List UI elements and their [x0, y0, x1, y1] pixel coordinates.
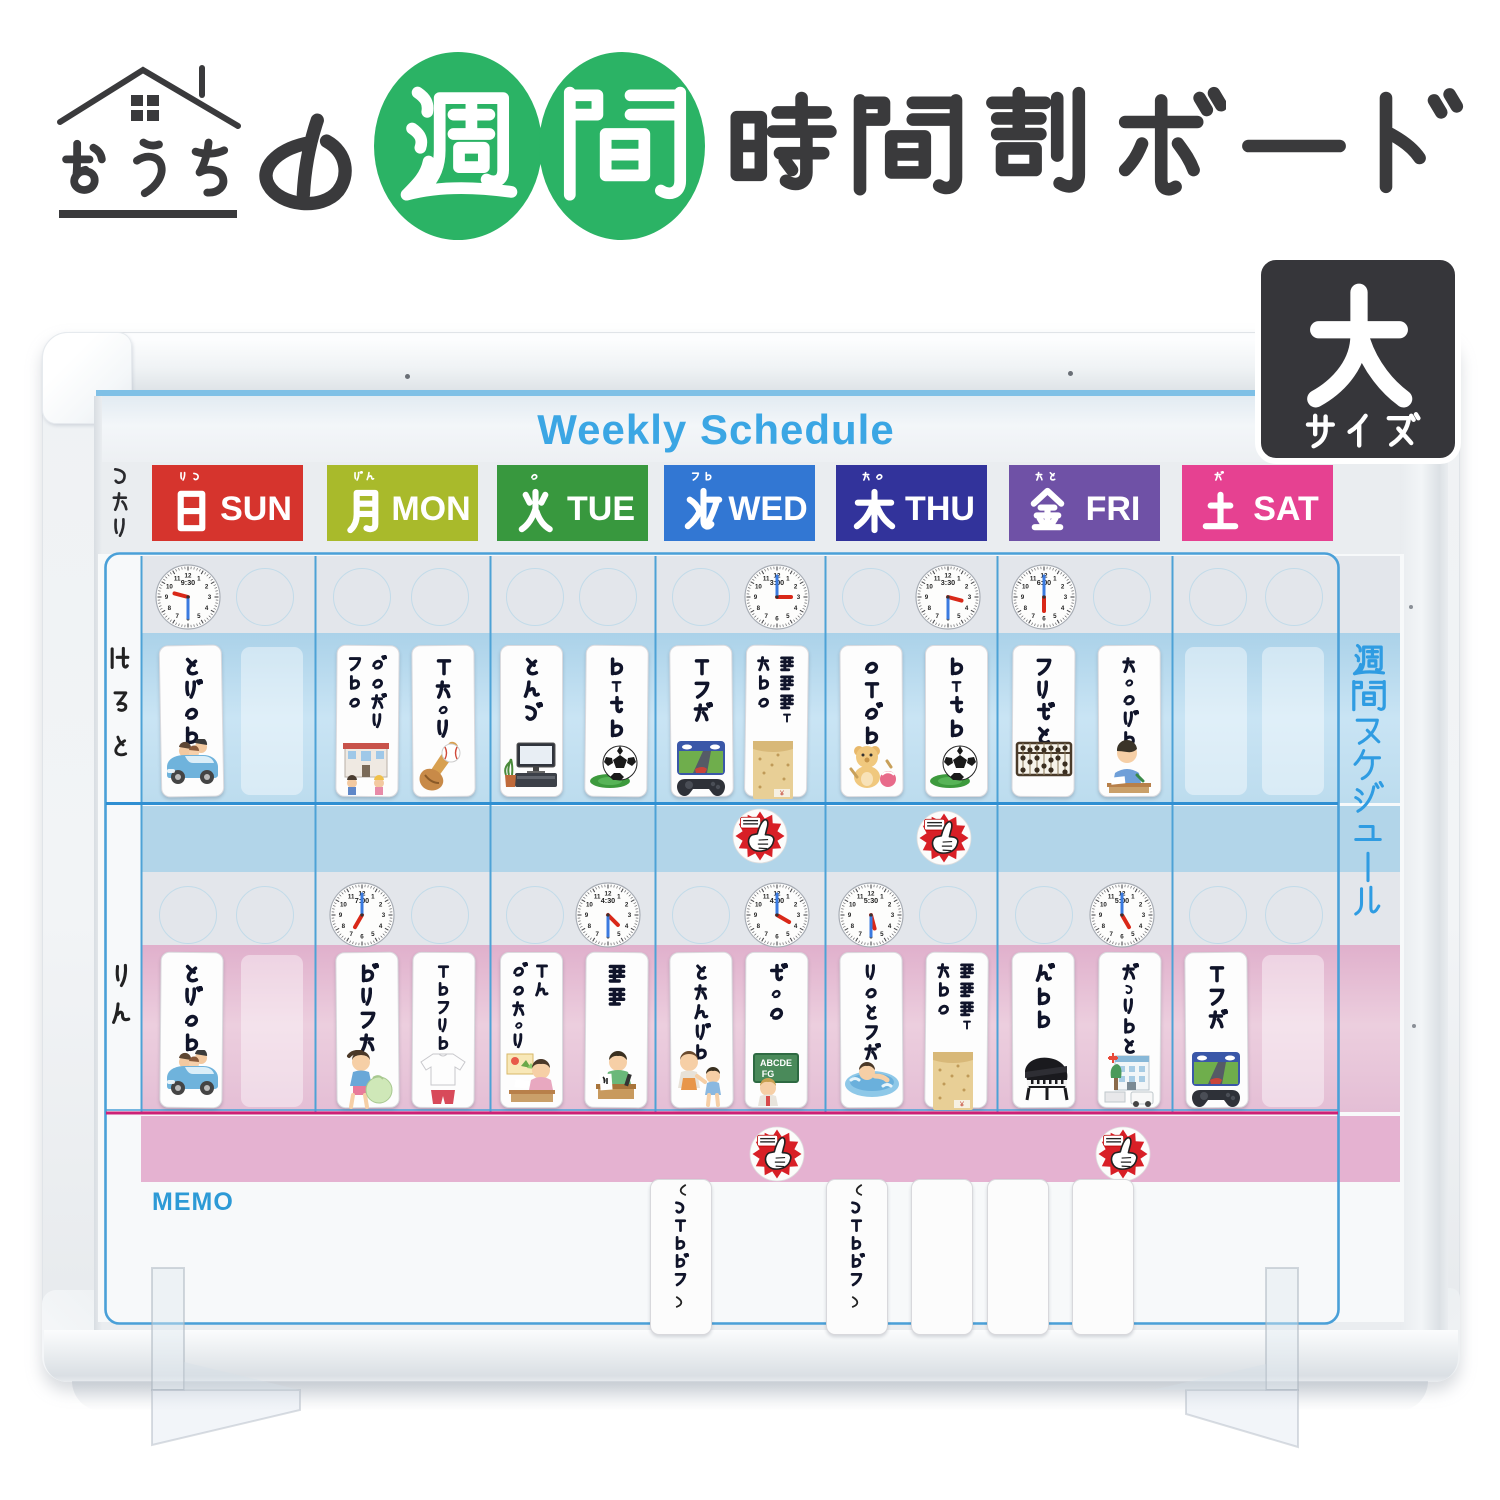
svg-text:2: 2: [1139, 901, 1143, 908]
svg-text:8: 8: [756, 605, 760, 612]
svg-text:2: 2: [888, 901, 892, 908]
svg-text:5: 5: [881, 931, 885, 938]
svg-text:8: 8: [1024, 605, 1028, 612]
svg-text:4: 4: [888, 923, 892, 930]
svg-text:3: 3: [891, 912, 895, 919]
svg-text:6: 6: [1120, 934, 1124, 941]
svg-text:10: 10: [755, 583, 762, 590]
svg-text:10: 10: [340, 901, 347, 908]
svg-text:2: 2: [793, 583, 797, 590]
svg-text:4: 4: [379, 923, 383, 930]
svg-text:FG: FG: [762, 1069, 775, 1079]
svg-text:9: 9: [848, 912, 852, 919]
svg-text:4: 4: [1139, 923, 1143, 930]
svg-text:4: 4: [205, 605, 209, 612]
svg-text:3: 3: [1142, 912, 1146, 919]
svg-text:2: 2: [379, 901, 383, 908]
svg-text:3: 3: [382, 912, 386, 919]
svg-text:ABCDE: ABCDE: [760, 1058, 792, 1068]
svg-text:10: 10: [586, 901, 593, 908]
svg-text:7: 7: [595, 931, 599, 938]
svg-text:5: 5: [957, 613, 961, 620]
svg-text:10: 10: [926, 583, 933, 590]
svg-text:1: 1: [1131, 894, 1135, 901]
svg-text:1: 1: [786, 576, 790, 583]
svg-text:4: 4: [793, 605, 797, 612]
svg-text:1: 1: [881, 894, 885, 901]
svg-text:1: 1: [786, 894, 790, 901]
svg-text:7: 7: [764, 613, 768, 620]
svg-text:9: 9: [1099, 912, 1103, 919]
svg-text:8: 8: [756, 923, 760, 930]
svg-text:10: 10: [1100, 901, 1107, 908]
svg-text:¥: ¥: [960, 1102, 964, 1109]
svg-text:2: 2: [625, 901, 629, 908]
svg-text:7: 7: [859, 931, 863, 938]
svg-text:8: 8: [168, 605, 172, 612]
svg-text:6: 6: [1043, 616, 1047, 623]
svg-text:9: 9: [753, 912, 757, 919]
svg-text:3: 3: [208, 594, 212, 601]
svg-text:3: 3: [796, 912, 800, 919]
svg-text:7: 7: [764, 931, 768, 938]
svg-text:4: 4: [965, 605, 969, 612]
svg-text:5: 5: [1131, 931, 1135, 938]
svg-text:1: 1: [371, 894, 375, 901]
svg-text:9: 9: [925, 594, 929, 601]
svg-text:9:30: 9:30: [181, 578, 195, 587]
svg-text:2: 2: [1061, 583, 1065, 590]
svg-text:9: 9: [753, 594, 757, 601]
svg-text:10: 10: [849, 901, 856, 908]
svg-text:5: 5: [786, 931, 790, 938]
svg-text:5: 5: [786, 613, 790, 620]
svg-text:6: 6: [361, 934, 365, 941]
svg-text:7: 7: [175, 613, 179, 620]
svg-text:10: 10: [166, 583, 173, 590]
svg-text:8: 8: [1102, 923, 1106, 930]
svg-text:8: 8: [588, 923, 592, 930]
svg-text:7: 7: [935, 613, 939, 620]
svg-text:6: 6: [775, 616, 779, 623]
svg-text:5: 5: [371, 931, 375, 938]
svg-text:3: 3: [968, 594, 972, 601]
svg-text:2: 2: [965, 583, 969, 590]
svg-text:1: 1: [197, 576, 201, 583]
svg-text:9: 9: [585, 912, 589, 919]
svg-text:5:30: 5:30: [864, 896, 878, 905]
svg-text:10: 10: [1022, 583, 1029, 590]
svg-text:4:30: 4:30: [601, 896, 615, 905]
svg-text:3: 3: [796, 594, 800, 601]
svg-text:3:30: 3:30: [941, 578, 955, 587]
svg-text:8: 8: [851, 923, 855, 930]
svg-text:8: 8: [928, 605, 932, 612]
svg-text:6: 6: [775, 934, 779, 941]
svg-text:1: 1: [617, 894, 621, 901]
svg-text:1: 1: [957, 576, 961, 583]
svg-text:4: 4: [1061, 605, 1065, 612]
svg-text:4: 4: [793, 923, 797, 930]
svg-text:8: 8: [342, 923, 346, 930]
svg-text:7: 7: [1110, 931, 1114, 938]
svg-text:7: 7: [1032, 613, 1036, 620]
svg-text:5: 5: [197, 613, 201, 620]
svg-text:4: 4: [625, 923, 629, 930]
svg-text:1: 1: [1053, 576, 1057, 583]
svg-text:7: 7: [350, 931, 354, 938]
svg-text:5: 5: [617, 931, 621, 938]
svg-text:9: 9: [339, 912, 343, 919]
svg-text:5: 5: [1053, 613, 1057, 620]
svg-text:10: 10: [755, 901, 762, 908]
svg-text:3: 3: [1064, 594, 1068, 601]
svg-text:9: 9: [1021, 594, 1025, 601]
svg-text:2: 2: [793, 901, 797, 908]
svg-text:¥: ¥: [780, 791, 784, 798]
svg-text:2: 2: [205, 583, 209, 590]
svg-text:3: 3: [628, 912, 632, 919]
svg-text:9: 9: [165, 594, 169, 601]
